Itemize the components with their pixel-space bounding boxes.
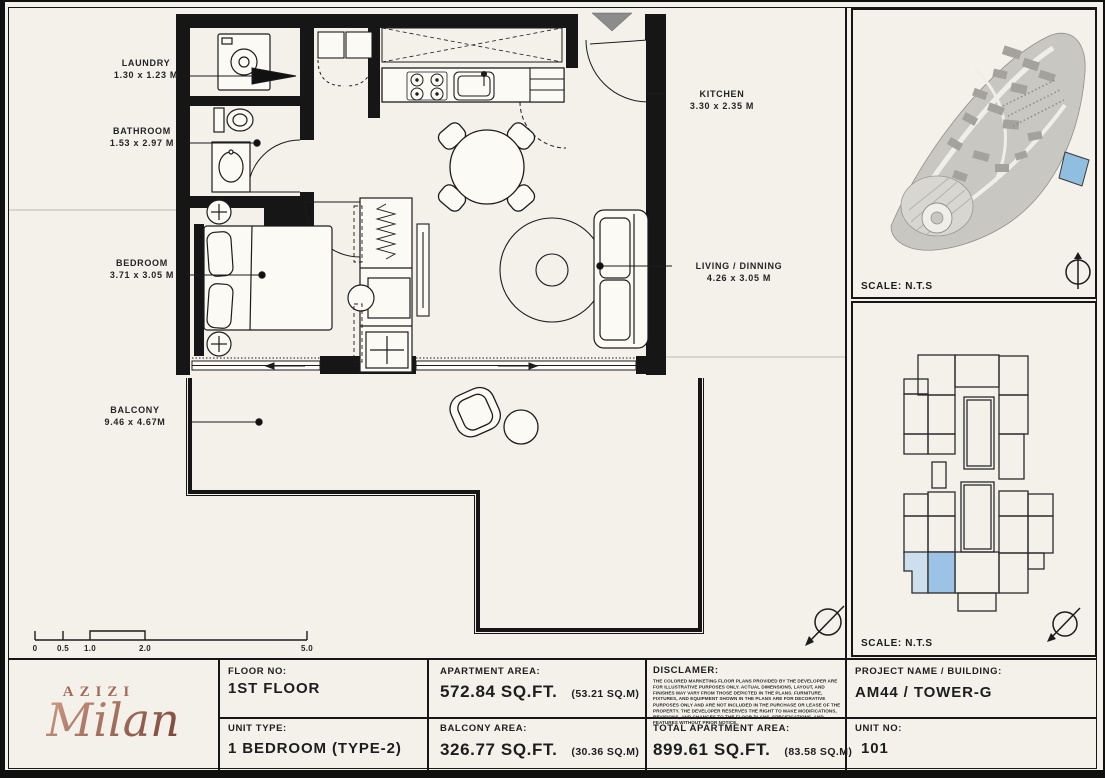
floor-plan-sheet: { "plan": { "rooms": { "laundry": {"name…: [0, 0, 1105, 778]
sheet-outer-frame: [0, 0, 1105, 778]
